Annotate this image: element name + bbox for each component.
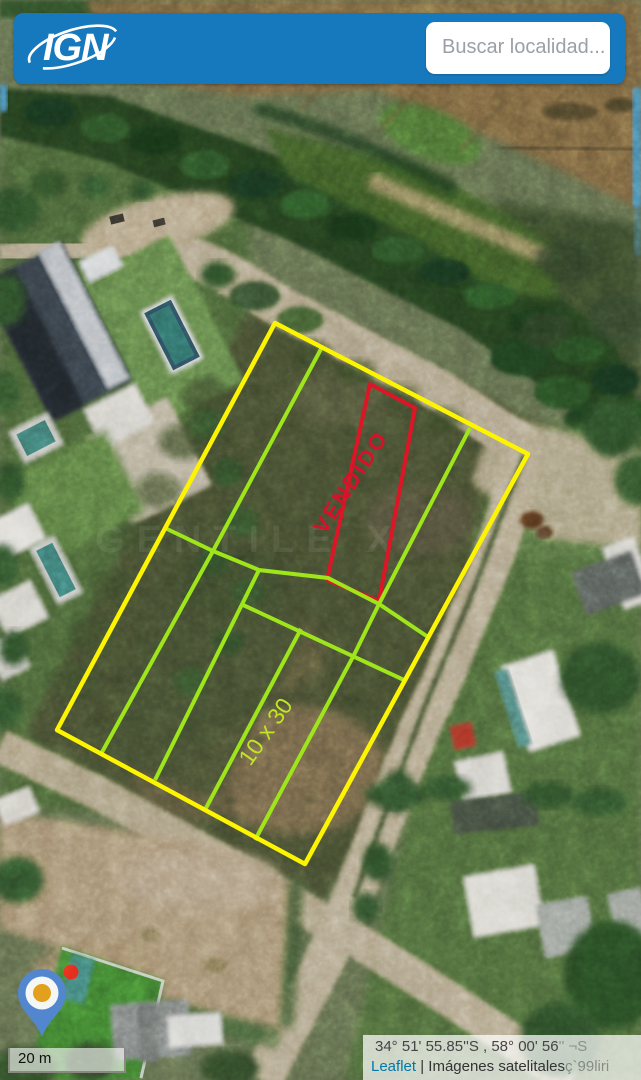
svg-text:GENTILE X: GENTILE X	[95, 519, 404, 561]
svg-text:IGN: IGN	[43, 27, 110, 69]
